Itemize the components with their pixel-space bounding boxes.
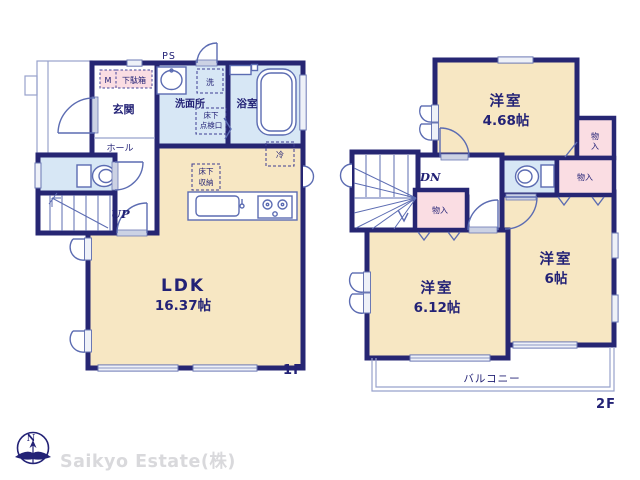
room-c-name: 洋室 [540,250,573,268]
floorplan-canvas: PS M 下駄箱 玄関 ホール 洗面所 洗 床下 点検口 浴室 床下 収納 冷 … [0,0,640,480]
room-b-area: 6.12帖 [414,299,461,316]
window [35,163,41,188]
shoe-cabinet-label: 下駄箱 [122,75,146,85]
stairs-up-label: UP [111,207,130,221]
porch-step [25,76,37,95]
room-c-6 [502,192,614,345]
floor1-label: 1F [283,363,303,378]
floor-2-plan: DN 洋室 4.68帖 洋室 6.12帖 洋室 6帖 物 入 物入 物入 バルコ… [341,57,619,412]
ldk-name: LDK [161,276,205,296]
porch-outline [37,61,92,153]
entrance-label: 玄関 [113,102,135,116]
washbasin [157,67,186,94]
window [300,75,306,130]
washroom-label: 洗面所 [175,97,205,110]
toilet-fixture-2f [516,165,555,187]
hall-label: ホール [106,143,133,154]
underfloor-storage-label-2: 収納 [199,177,214,187]
washer-label: 洗 [206,77,214,87]
room-b-name: 洋室 [421,279,454,297]
floor-hatch-label-1: 床下 [204,110,219,120]
stairs-down-label: DN [419,170,441,184]
fridge-label: 冷 [276,150,284,160]
floor-hatch-label-2: 点検口 [200,120,223,130]
balcony-label: バルコニー [463,373,520,385]
closet-top-label-1: 物 [591,131,599,141]
ps-label: PS [162,51,176,62]
ldk-area: 16.37帖 [155,297,212,314]
underfloor-storage-label-1: 床下 [199,166,214,176]
front-door [58,97,98,133]
window [127,60,142,66]
floor2-label: 2F [596,397,616,412]
toilet-fixture-1f [77,165,116,187]
porch [25,61,92,153]
window [612,295,618,322]
compass-north-label: N [27,433,36,444]
compass-icon: N [15,433,51,464]
room-a-name: 洋室 [490,92,523,110]
room-a-area: 4.68帖 [483,112,530,129]
stair-wall-vent [341,164,353,187]
washroom-outside-door [196,43,217,66]
kitchen-back-vent [303,166,314,187]
meter-label: M [105,76,112,85]
bathroom-label: 浴室 [237,97,258,110]
floor-1-plan: PS M 下駄箱 玄関 ホール 洗面所 洗 床下 点検口 浴室 床下 収納 冷 … [25,43,314,378]
watermark-company: Saikyo Estate(株) [60,451,236,472]
closet-right-label: 物入 [577,172,593,182]
window [612,233,618,258]
closet-bottom-label: 物入 [432,205,448,215]
window [498,57,533,63]
room-c-area: 6帖 [545,270,568,287]
closet-top-label-2: 入 [591,142,599,151]
kitchen-counter [188,192,297,220]
kitchen-sink [196,196,239,216]
